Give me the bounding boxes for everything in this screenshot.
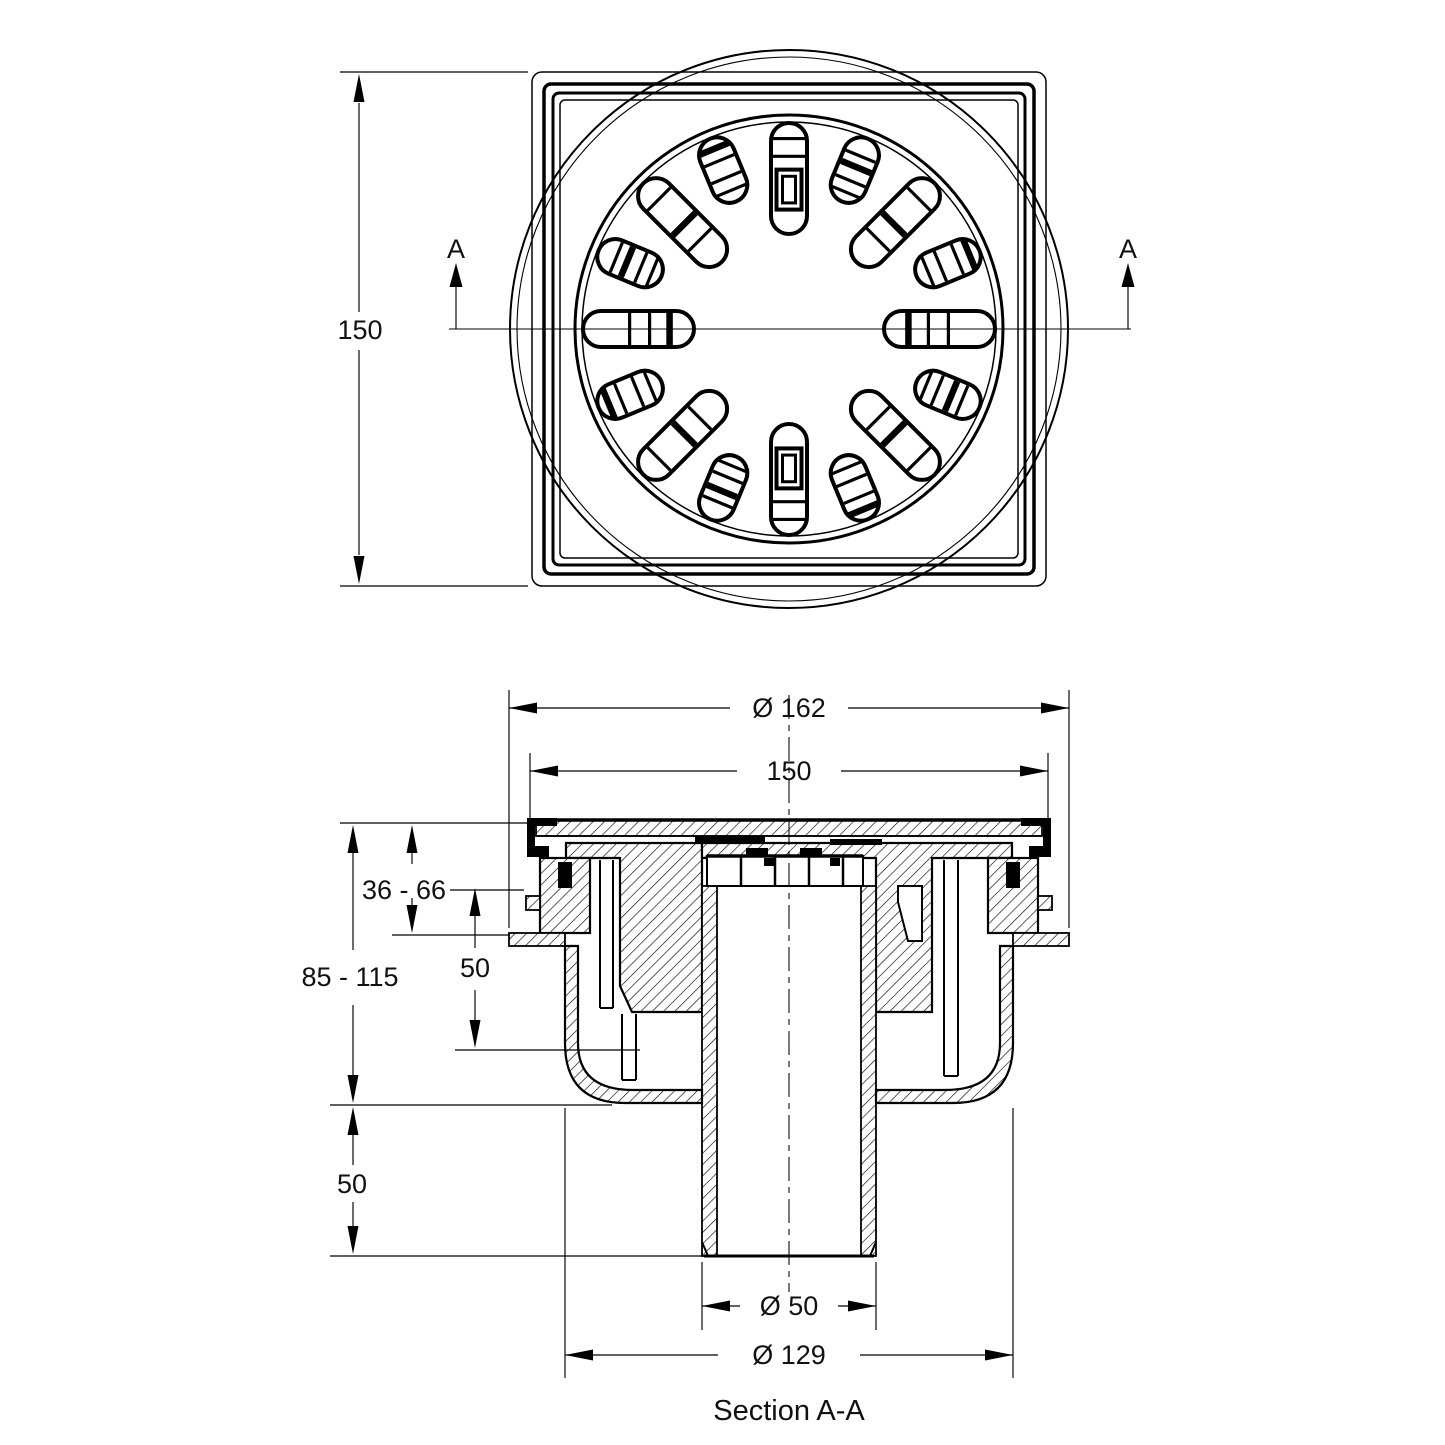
- section-caption: Section A-A: [713, 1395, 865, 1427]
- dim-outer-flange-label: Ø 162: [752, 693, 826, 723]
- grate-slot: [592, 365, 669, 424]
- dim-trap-depth: 50: [460, 888, 490, 1048]
- dim-spigot-length-label: 50: [337, 1169, 367, 1199]
- grate-slot: [771, 123, 807, 234]
- dim-top-width-label: 150: [766, 756, 811, 786]
- grate-slot: [825, 450, 884, 527]
- grate-slot: [910, 234, 987, 293]
- flange-wing-right: [1013, 933, 1069, 946]
- dim-body-label: Ø 129: [752, 1340, 826, 1370]
- section-label-left: A: [447, 234, 465, 264]
- floor-drain-technical-drawing: A A 150: [0, 0, 1445, 1445]
- dim-trap-depth-label: 50: [460, 953, 490, 983]
- dim-total-height-label: 85 - 115: [301, 962, 398, 992]
- grate-slot: [592, 234, 669, 293]
- clamp-ring-left: [526, 858, 590, 933]
- frame-hook-left: [527, 818, 557, 857]
- grate-slot: [694, 450, 753, 527]
- top-view: A A 150: [337, 50, 1137, 608]
- grate-slot: [825, 132, 884, 209]
- dim-total-height: 85 - 115: [301, 825, 398, 1103]
- dim-outlet-label: Ø 50: [760, 1291, 819, 1321]
- dim-install-depth: 36 - 66: [362, 825, 446, 933]
- section-label-right: A: [1119, 234, 1137, 264]
- dim-top-view-height-label: 150: [337, 315, 382, 345]
- clamp-ring-right: [988, 858, 1052, 933]
- grate-slot: [910, 365, 987, 424]
- section-marker-right: A: [1119, 234, 1137, 329]
- dim-spigot-length: 50: [337, 1107, 367, 1254]
- dim-install-depth-label: 36 - 66: [362, 875, 446, 905]
- grate-slot: [694, 132, 753, 209]
- grate-slot: [771, 424, 807, 535]
- section-marker-left: A: [447, 234, 465, 329]
- frame-hook-right: [1021, 818, 1051, 857]
- technical-drawing-page: A A 150: [0, 0, 1445, 1445]
- section-view: Ø 162 150 36 - 66: [301, 690, 1069, 1427]
- flange-wing-left: [509, 933, 565, 946]
